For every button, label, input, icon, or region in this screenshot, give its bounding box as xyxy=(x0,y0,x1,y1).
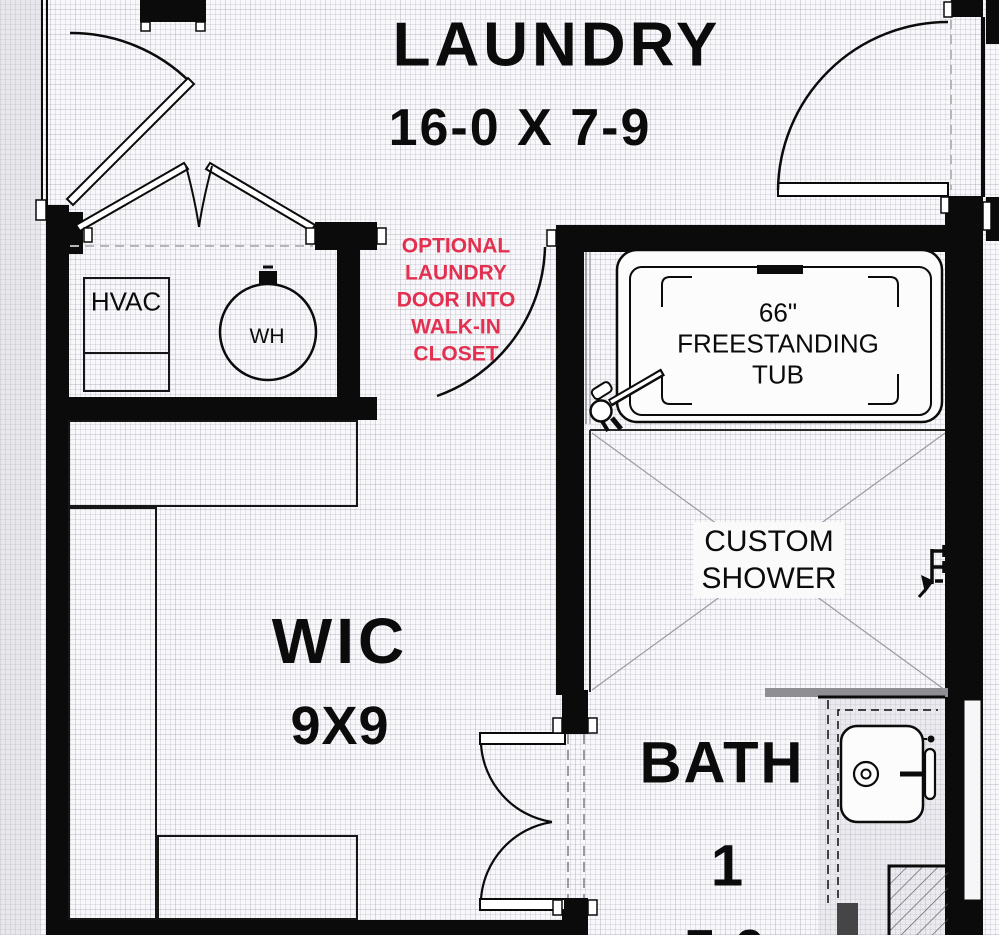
water-heater-label: WH xyxy=(250,325,285,349)
shower-label-line-1: CUSTOM xyxy=(702,523,837,560)
shower-label: CUSTOM SHOWER xyxy=(694,522,845,598)
bath-room-dims-text: 7-9 xyxy=(685,922,766,935)
bath-room-number: 1 xyxy=(711,833,743,900)
note-line-1: OPTIONAL xyxy=(397,233,516,260)
tub-faucet-handle xyxy=(590,381,613,401)
water-heater-vent xyxy=(259,271,277,284)
tub-overflow-drain xyxy=(757,265,803,274)
bifold-fold-curve-right xyxy=(199,166,212,227)
note-line-3: DOOR INTO xyxy=(397,287,516,314)
tub-label-line-3: TUB xyxy=(677,360,879,391)
tub-label-line-1: 66" xyxy=(677,298,879,329)
bath-room-dims-clipped: 7-9 xyxy=(656,922,796,935)
sink-faucet-handle xyxy=(925,749,935,799)
bifold-fold-curve-left xyxy=(186,166,199,227)
laundry-right-door-swing-arc xyxy=(778,22,948,190)
tub-faucet-base xyxy=(591,401,612,422)
laundry-left-door-swing-arc xyxy=(70,33,190,82)
laundry-right-door-leaf xyxy=(778,183,948,196)
note-line-5: CLOSET xyxy=(397,341,516,368)
french-door-top-swing-arc xyxy=(481,744,552,822)
french-door-top-leaf xyxy=(480,733,565,744)
shower-valve-icon xyxy=(919,545,944,597)
shower-label-line-2: SHOWER xyxy=(702,560,837,597)
cabinet-hatch xyxy=(889,866,948,935)
tub-label-line-2: FREESTANDING xyxy=(677,329,879,360)
note-line-4: WALK-IN xyxy=(397,314,516,341)
laundry-left-door-leaf xyxy=(67,78,194,205)
laundry-room-title: LAUNDRY xyxy=(393,10,722,81)
bath-room-title: BATH xyxy=(640,730,805,797)
optional-door-note: OPTIONAL LAUNDRY DOOR INTO WALK-IN CLOSE… xyxy=(397,233,516,368)
tub-faucet-leg-a xyxy=(612,418,621,429)
hvac-label: HVAC xyxy=(91,287,161,318)
floor-plan: LAUNDRY 16-0 X 7-9 OPTIONAL LAUNDRY DOOR… xyxy=(0,0,999,935)
sink-faucet-knob xyxy=(928,736,935,743)
wall-niche xyxy=(964,700,981,900)
bifold-door-right-panel xyxy=(206,163,315,231)
tub-label: 66" FREESTANDING TUB xyxy=(677,298,879,391)
wic-room-title: WIC xyxy=(272,604,408,678)
laundry-room-dims: 16-0 X 7-9 xyxy=(389,98,652,158)
wic-room-dims: 9X9 xyxy=(290,695,389,757)
french-door-bottom-swing-arc xyxy=(481,822,552,899)
note-line-2: LAUNDRY xyxy=(397,260,516,287)
